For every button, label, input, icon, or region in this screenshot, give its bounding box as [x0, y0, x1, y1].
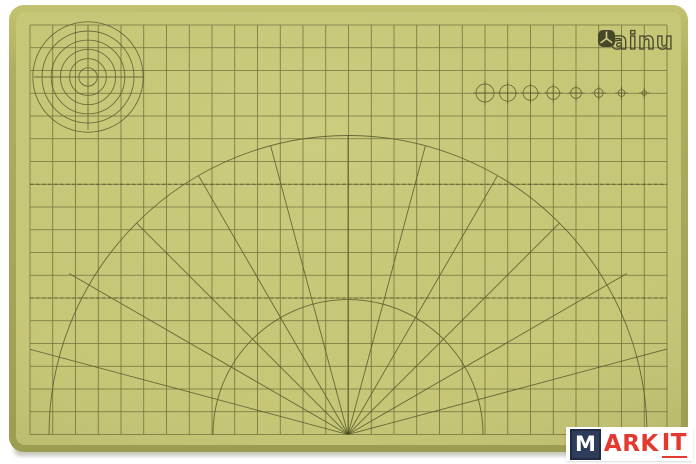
markit-watermark: M ARK IT — [566, 427, 693, 461]
watermark-text-ark: ARK — [604, 431, 659, 457]
brand-logo-text: ainu — [611, 27, 674, 55]
product-photo: ainu M ARK IT — [0, 0, 696, 464]
watermark-text-it: IT — [662, 430, 687, 458]
watermark-m-tile: M — [570, 429, 601, 460]
cutting-mat: ainu — [0, 0, 696, 464]
